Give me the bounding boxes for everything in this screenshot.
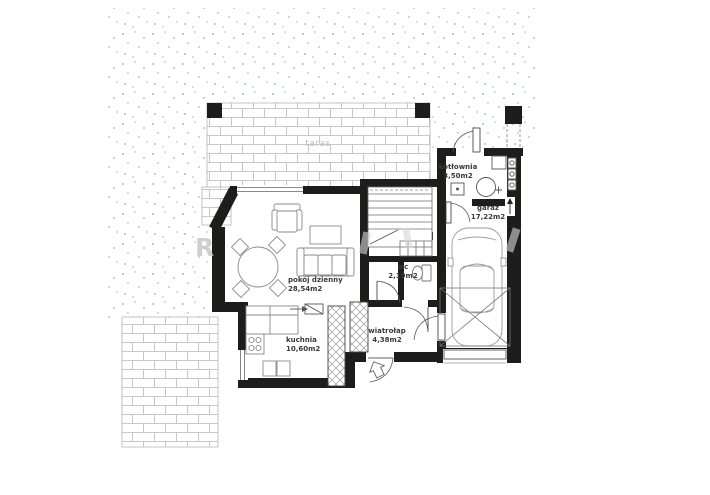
room-name: kuchnia: [286, 336, 320, 345]
dining-chair: [270, 280, 287, 297]
room-label-wiatrolap: wiatrołap 4,38m2: [362, 327, 412, 346]
room-name: wiatrołap: [362, 327, 412, 336]
terrace-sliding-door: [237, 185, 303, 194]
hall-door-opening: [402, 300, 428, 307]
garage-gate-panel: [444, 350, 506, 359]
room-label-kuchnia: kuchnia 10,60m2: [286, 336, 320, 355]
room-area: 10,60m2: [286, 345, 320, 354]
floor-plan-canvas: taras R pokój dzienny 28,54m2 kuchnia 10…: [0, 0, 710, 495]
car-mirror: [501, 258, 506, 266]
kitchen-cabinet: [263, 361, 276, 376]
toilet-tank: [422, 265, 431, 281]
staircase: [368, 187, 432, 256]
room-area: 4,38m2: [362, 336, 412, 345]
kitchen-cabinet: [277, 361, 290, 376]
dining-table: [238, 247, 278, 287]
sofa: [297, 248, 354, 276]
room-label-wc: wc 2,19m2: [386, 263, 420, 282]
room-area: 28,54m2: [288, 285, 343, 294]
kitchen-window: [238, 350, 248, 380]
room-name: wc: [386, 263, 420, 272]
entrance-opening: [366, 352, 394, 362]
terrace-post-left: [207, 103, 222, 118]
room-area: 17,22m2: [464, 213, 512, 222]
kitchen-counter: [246, 306, 298, 334]
dining-chair: [269, 237, 286, 254]
room-name: pokój dzienny: [288, 276, 343, 285]
paved-patch: [122, 317, 218, 447]
pergola-post: [505, 106, 522, 124]
armchair: [272, 204, 302, 232]
room-area: 3,50m2: [436, 172, 480, 181]
vestibule-garage-door: [414, 314, 445, 340]
car: [448, 228, 506, 346]
garage-contents: [440, 228, 510, 363]
terrace-label: taras: [294, 139, 342, 149]
room-label-kotlownia: kotłownia 3,50m2: [436, 163, 480, 182]
coffee-table: [310, 226, 341, 244]
wall-radiator: [508, 158, 516, 190]
wc-door: [377, 281, 400, 303]
stove: [246, 334, 264, 354]
floor-plan-drawing: [0, 0, 710, 495]
room-label-garaz: garaż 17,22m2: [464, 204, 512, 223]
room-label-pokoj-dzienny: pokój dzienny 28,54m2: [288, 276, 343, 295]
room-area: 2,19m2: [386, 272, 420, 281]
watermark-letter: R: [195, 233, 214, 262]
room-name: garaż: [464, 204, 512, 213]
car-mirror: [448, 258, 453, 266]
terrace-post-right: [415, 103, 430, 118]
room-name: kotłownia: [436, 163, 480, 172]
